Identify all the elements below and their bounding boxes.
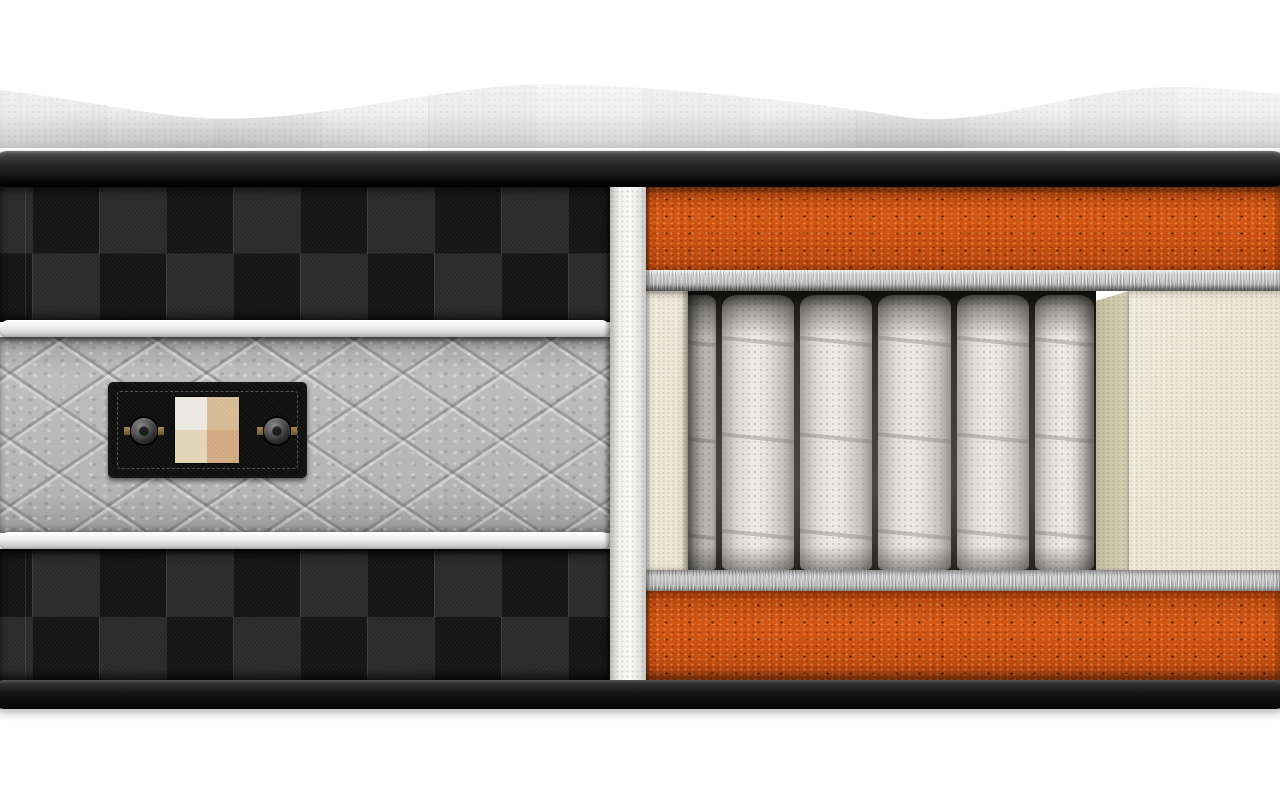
bottom-piping-band: [0, 680, 1280, 709]
white-piping-strip-lower: [0, 532, 610, 549]
checkered-fabric-band-top: [0, 185, 610, 322]
felt-pad-top: [646, 270, 1280, 291]
mattress-cutaway-section: [646, 185, 1280, 681]
pocket-spring: [722, 295, 794, 570]
gray-quilted-band: [0, 337, 610, 533]
pocket-spring: [878, 295, 951, 570]
label-color-swatch: [175, 397, 239, 463]
comfort-foam-top-layer: [646, 185, 1280, 270]
pocket-spring: [688, 295, 716, 570]
comfort-foam-bottom-layer: [646, 591, 1280, 681]
pocket-spring: [957, 295, 1029, 570]
mattress-label: [108, 382, 307, 478]
swatch-bottom-left: [175, 430, 207, 463]
pocket-spring-cavity: [688, 291, 1096, 570]
cut-edge-fabric-strip: [610, 184, 646, 681]
spring-core-zone: [646, 291, 1280, 570]
felt-pad-bottom: [646, 570, 1280, 591]
swatch-top-right: [207, 397, 239, 430]
grommet-core: [272, 426, 282, 436]
checkered-fabric-band-bottom: [0, 549, 610, 681]
white-piping-strip-upper: [0, 320, 610, 337]
swatch-bottom-right: [207, 430, 239, 463]
label-grommet-left: [131, 418, 157, 444]
foam-encasement-corner-side-face: [1096, 291, 1129, 570]
foam-encasement-left-wall: [646, 291, 688, 570]
quilted-pillow-top: [0, 55, 1280, 155]
pocket-spring: [1035, 295, 1094, 570]
mattress-side-panel: [0, 185, 610, 681]
grommet-core: [139, 426, 149, 436]
foam-encasement-front-face: [1129, 291, 1280, 570]
label-grommet-right: [264, 418, 290, 444]
pocket-spring: [800, 295, 872, 570]
swatch-top-left: [175, 397, 207, 430]
page-background: [0, 0, 1280, 800]
top-piping-band: [0, 151, 1280, 187]
